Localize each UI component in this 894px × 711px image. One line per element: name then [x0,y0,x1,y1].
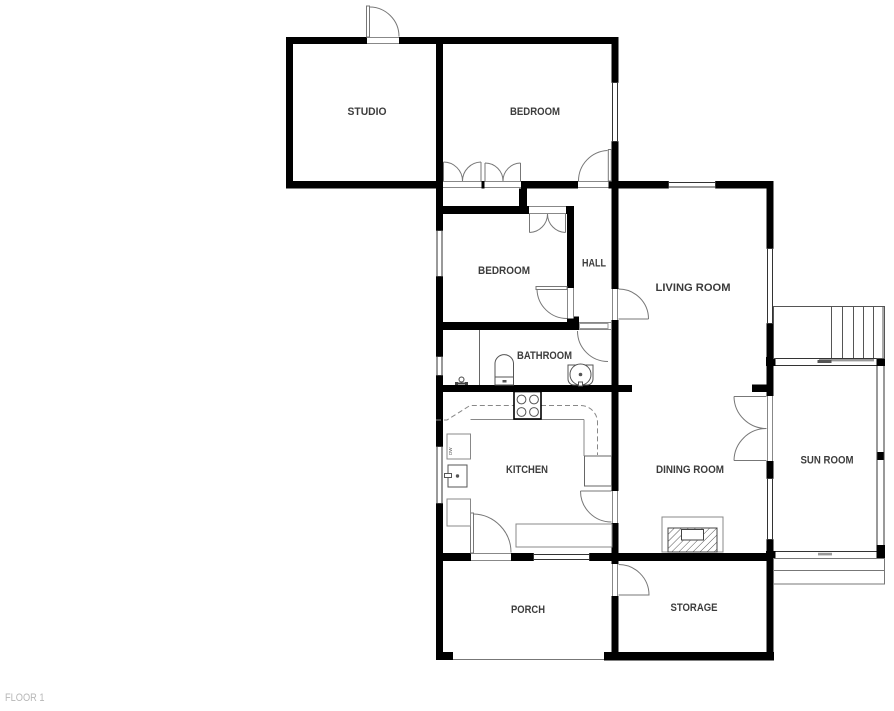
svg-text:BATHROOM: BATHROOM [517,350,572,362]
svg-text:BEDROOM: BEDROOM [478,265,530,277]
svg-text:DW: DW [448,447,453,455]
svg-text:LIVING ROOM: LIVING ROOM [656,282,731,294]
svg-text:BEDROOM: BEDROOM [510,106,560,118]
svg-text:FLOOR 1: FLOOR 1 [5,692,45,704]
svg-text:SUN ROOM: SUN ROOM [801,455,854,467]
svg-text:STORAGE: STORAGE [671,602,718,614]
svg-text:HALL: HALL [582,258,606,270]
svg-text:KITCHEN: KITCHEN [506,464,548,476]
svg-text:DINING ROOM: DINING ROOM [656,464,724,476]
svg-text:PORCH: PORCH [511,604,545,616]
svg-text:STUDIO: STUDIO [348,106,387,118]
